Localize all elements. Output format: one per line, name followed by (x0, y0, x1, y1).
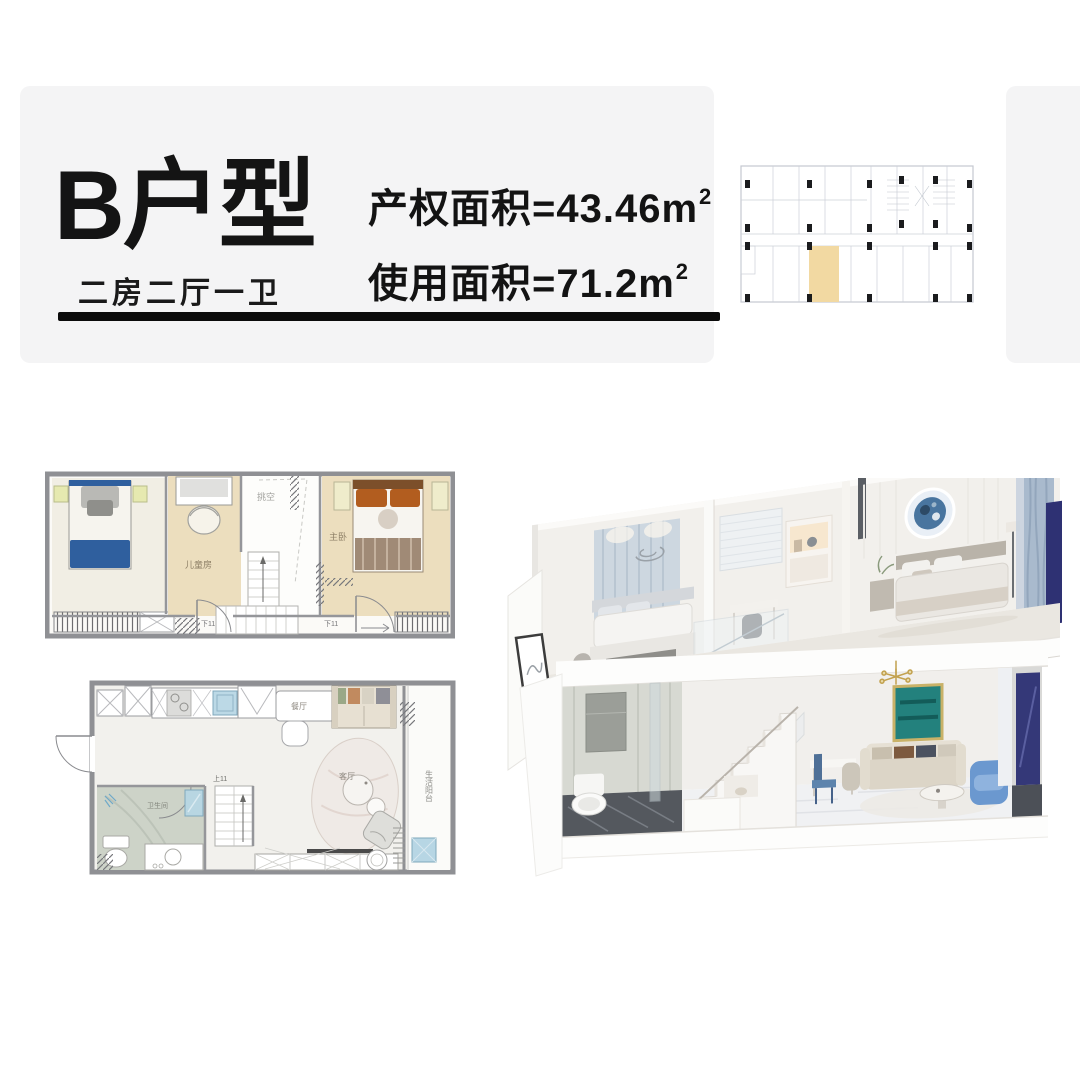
render-sofa (860, 740, 966, 791)
upper-floor-plan: 儿童房 挑空 (45, 466, 455, 642)
wall-hatch (325, 578, 353, 586)
header-card: B户型 二房二厅一卫 产权面积=43.46m2 使用面积=71.2m2 (20, 86, 714, 363)
stair-count-label: 上11 (213, 774, 227, 783)
wall-hatch (290, 476, 299, 510)
header-card-edge-fragment (1006, 86, 1080, 363)
teal-art (894, 685, 942, 741)
sofa (332, 686, 396, 728)
area-unit: m (661, 187, 698, 231)
single-bed (69, 480, 131, 569)
poster: B户型 二房二厅一卫 产权面积=43.46m2 使用面积=71.2m2 (0, 0, 1080, 1080)
stove (167, 690, 191, 716)
bathroom: 卫生间 (97, 786, 205, 870)
dining-label: 餐厅 (291, 702, 307, 711)
building-key-plan (737, 158, 977, 310)
area-unit: m (638, 262, 675, 306)
washing-machine (367, 850, 387, 870)
stair-count-right-label: 下11 (324, 620, 338, 628)
dining-chair (282, 721, 308, 746)
double-bed (353, 480, 423, 572)
balcony-label: 生活阳台 (425, 769, 434, 803)
void-area: 挑空 (241, 476, 320, 616)
area-label: 使用面积 (368, 262, 532, 306)
render-lower-floor (556, 640, 1048, 859)
wall-hatch (97, 854, 113, 870)
kids-room: 儿童房 (168, 476, 241, 616)
equals-sign: = (532, 262, 556, 306)
marble-sill (1012, 784, 1042, 817)
tv (307, 849, 373, 853)
master-bedroom-label: 主卧 (329, 531, 347, 542)
area-value: 71.2 (556, 262, 638, 306)
partition-wall (842, 481, 850, 642)
wall-hatch (316, 562, 324, 606)
bathroom-cabinet (586, 692, 626, 752)
side-chair (842, 762, 860, 791)
kids-room-label: 儿童房 (185, 559, 212, 570)
desk-chair (188, 506, 220, 534)
stairs-upper-flight (248, 552, 279, 606)
unit-type-subtitle: 二房二厅一卫 (78, 268, 282, 312)
equals-sign: = (532, 187, 556, 231)
nightstand (870, 578, 894, 611)
area-unit-sup: 2 (699, 184, 712, 209)
bathroom-label: 卫生间 (147, 801, 168, 810)
glass-panel (650, 683, 660, 801)
master-bedroom: 主卧 (322, 476, 450, 632)
area-figures: 产权面积=43.46m2 使用面积=71.2m2 (368, 176, 712, 326)
blue-dining-chair (812, 779, 836, 788)
entry-door (56, 736, 95, 772)
property-area-row: 产权面积=43.46m2 (368, 176, 712, 234)
highlighted-unit (809, 246, 839, 302)
vanity (145, 844, 203, 870)
area-label: 产权面积 (368, 187, 532, 231)
usable-area-row: 使用面积=71.2m2 (368, 251, 712, 309)
unit-type-title: B户型 (54, 156, 315, 254)
living-label: 客厅 (339, 771, 355, 781)
stair-count-left-label: 下11 (201, 620, 215, 628)
wall-hatch (400, 702, 415, 726)
render-bathroom (562, 682, 682, 837)
area-unit-sup: 2 (676, 259, 689, 284)
cutaway-3d-render (498, 478, 1065, 902)
render-left-gable (520, 674, 562, 876)
second-bedroom (52, 478, 174, 632)
area-value: 43.46 (556, 187, 661, 231)
void-label: 挑空 (257, 491, 275, 502)
lower-floor-plan: 餐厅 客厅 (55, 678, 460, 888)
